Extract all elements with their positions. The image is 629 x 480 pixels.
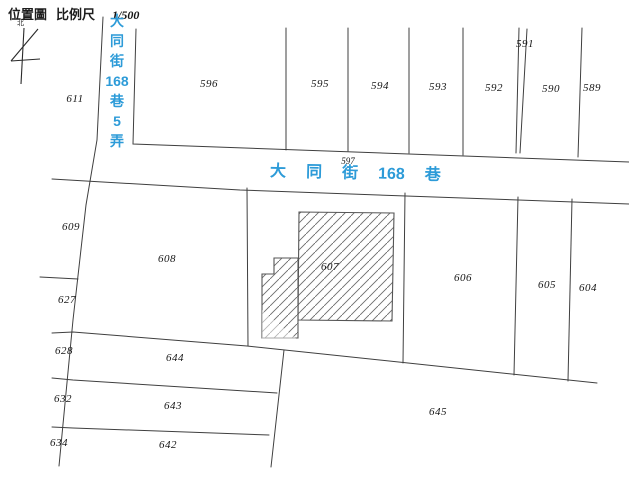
map-lines-canvas xyxy=(0,0,629,480)
parcel-label-596: 596 xyxy=(200,78,218,90)
parcel-label-591: 591 xyxy=(516,38,534,50)
parcel-label-589: 589 xyxy=(583,82,601,94)
parcel-label-594: 594 xyxy=(371,80,389,92)
lane-char: 168 xyxy=(105,74,128,88)
lane-char: 5 xyxy=(113,114,121,128)
road-char: 大 xyxy=(270,164,286,180)
building-main-block xyxy=(298,212,394,321)
map-title: 位置圖 xyxy=(8,4,47,23)
parcel-label-642: 642 xyxy=(159,439,177,451)
cadastral-location-map: 位置圖 比例尺 1/500 北 大 同 街 168 巷 5 弄 大 同 街 16… xyxy=(0,0,629,480)
parcel-label-643: 643 xyxy=(164,400,182,412)
lane-char: 弄 xyxy=(110,134,124,148)
lane-char: 街 xyxy=(110,54,124,68)
road-char: 巷 xyxy=(425,168,441,184)
scale-label: 比例尺 xyxy=(56,4,95,23)
road-char: 街 xyxy=(342,166,358,182)
parcel-label-608: 608 xyxy=(158,253,176,265)
parcel-label-597: 597 xyxy=(341,156,355,166)
road-char: 168 xyxy=(378,167,405,184)
parcel-label-627: 627 xyxy=(58,294,76,306)
parcel-label-592: 592 xyxy=(485,82,503,94)
parcel-label-604: 604 xyxy=(579,282,597,294)
lane-road-label: 大 同 街 168 巷 5 弄 xyxy=(99,14,135,148)
parcel-label-593: 593 xyxy=(429,81,447,93)
parcel-label-607: 607 xyxy=(321,261,339,273)
lane-char: 同 xyxy=(110,34,124,48)
parcel-label-605: 605 xyxy=(538,279,556,291)
parcel-label-606: 606 xyxy=(454,272,472,284)
north-label: 北 xyxy=(17,18,24,28)
parcel-label-632: 632 xyxy=(54,393,72,405)
parcel-label-611: 611 xyxy=(66,93,83,105)
road-bottom-boundary xyxy=(52,179,629,204)
parcel-label-590: 590 xyxy=(542,83,560,95)
parcel-label-645: 645 xyxy=(429,406,447,418)
parcel-label-595: 595 xyxy=(311,78,329,90)
north-arrow-icon xyxy=(11,28,40,84)
building-607-hatched xyxy=(262,212,394,340)
lane-char: 巷 xyxy=(110,94,124,108)
parcel-label-609: 609 xyxy=(62,221,80,233)
parcel-label-628: 628 xyxy=(55,345,73,357)
lane-right-and-road-top-boundary xyxy=(133,29,629,162)
parcel-label-644: 644 xyxy=(166,352,184,364)
road-char: 同 xyxy=(306,165,322,181)
parcel-label-634: 634 xyxy=(50,437,68,449)
lane-char: 大 xyxy=(110,14,124,28)
